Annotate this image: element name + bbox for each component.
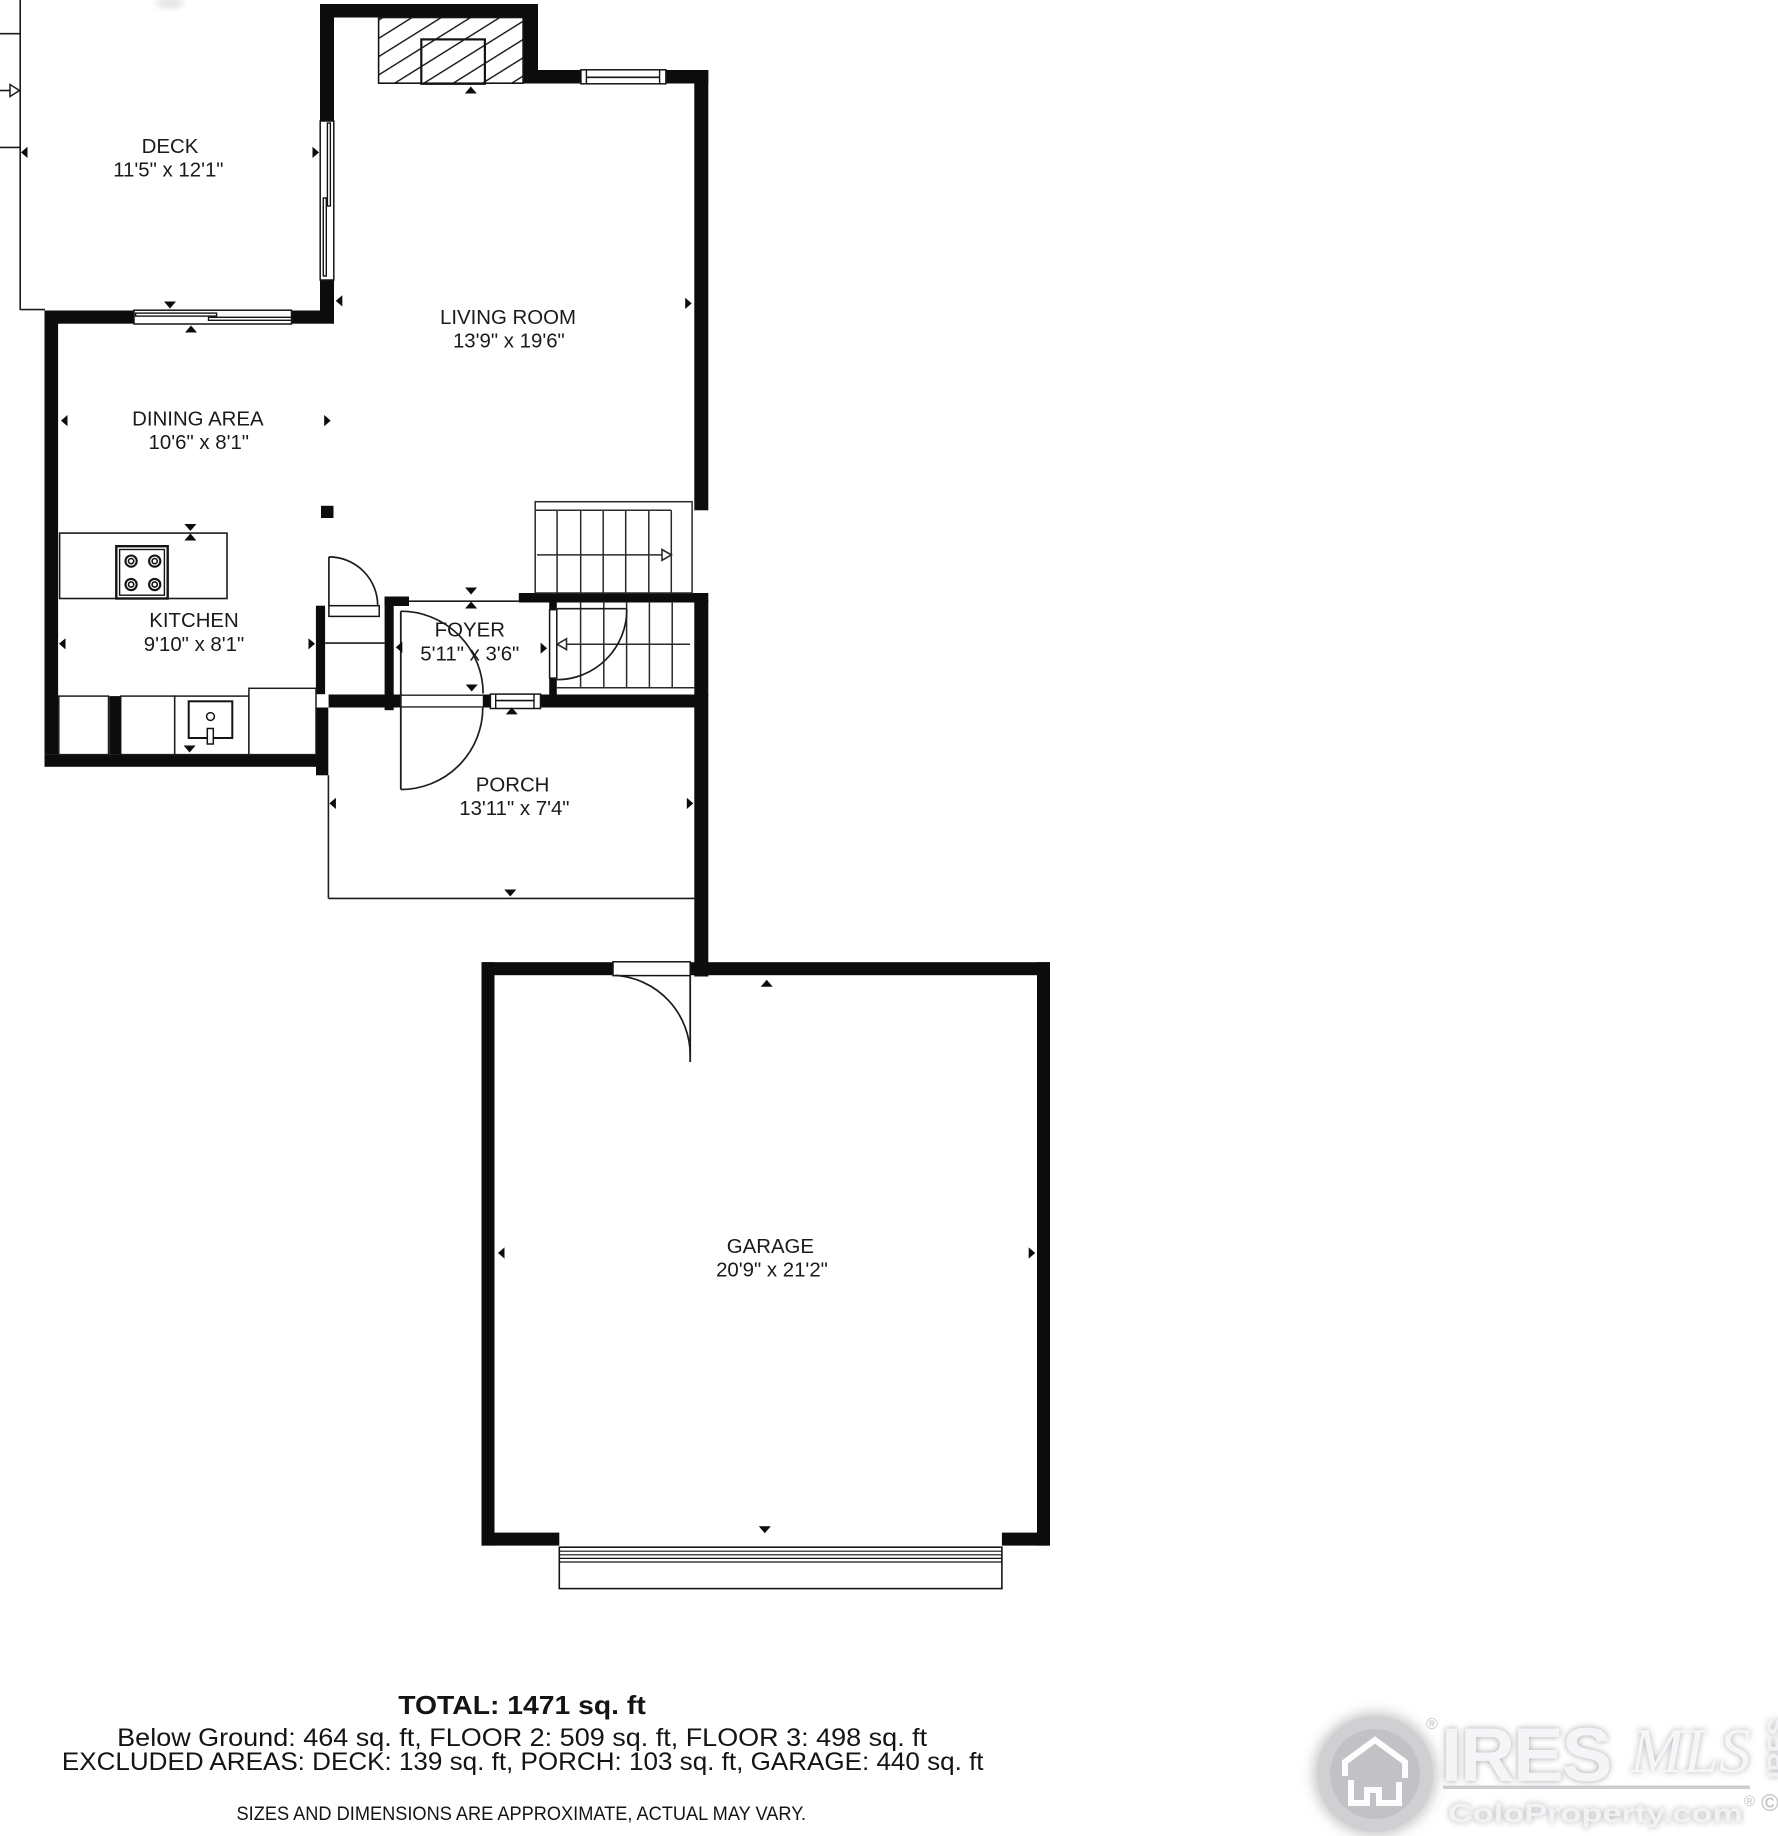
svg-text:20'9" x 21'2": 20'9" x 21'2": [716, 1260, 828, 1282]
svg-text:IRES: IRES: [1441, 1713, 1610, 1798]
svg-text:EXCLUDED AREAS: DECK: 139 sq.: EXCLUDED AREAS: DECK: 139 sq. ft, PORCH:…: [62, 1748, 984, 1776]
svg-text:PORCH: PORCH: [476, 775, 550, 797]
svg-text:9'10" x 8'1": 9'10" x 8'1": [144, 634, 245, 656]
svg-text:5'11" x 3'6": 5'11" x 3'6": [420, 643, 519, 665]
svg-text:IRES: IRES: [1762, 1718, 1778, 1779]
svg-text:LIVING ROOM: LIVING ROOM: [440, 307, 576, 329]
svg-text:DINING AREA: DINING AREA: [132, 408, 264, 430]
svg-text:ColoProperty.com: ColoProperty.com: [1448, 1798, 1743, 1828]
svg-text:10'6" x 8'1": 10'6" x 8'1": [149, 432, 250, 454]
svg-text:®: ®: [1426, 1716, 1438, 1733]
svg-text:MLS: MLS: [1629, 1715, 1751, 1786]
svg-text:TOTAL: 1471 sq. ft: TOTAL: 1471 sq. ft: [398, 1690, 646, 1720]
svg-text:DECK: DECK: [142, 136, 199, 158]
svg-text:GARAGE: GARAGE: [727, 1236, 814, 1258]
svg-text:KITCHEN: KITCHEN: [149, 610, 239, 632]
svg-text:11'5" x 12'1": 11'5" x 12'1": [113, 159, 223, 181]
svg-text:©: ©: [1761, 1790, 1778, 1817]
svg-text:SIZES AND DIMENSIONS ARE APPRO: SIZES AND DIMENSIONS ARE APPROXIMATE, AC…: [237, 1804, 807, 1825]
svg-text:13'9" x 19'6": 13'9" x 19'6": [453, 331, 565, 353]
svg-text:FOYER: FOYER: [435, 620, 505, 642]
svg-text:13'11" x 7'4": 13'11" x 7'4": [459, 798, 569, 820]
svg-text:®: ®: [1744, 1793, 1755, 1810]
